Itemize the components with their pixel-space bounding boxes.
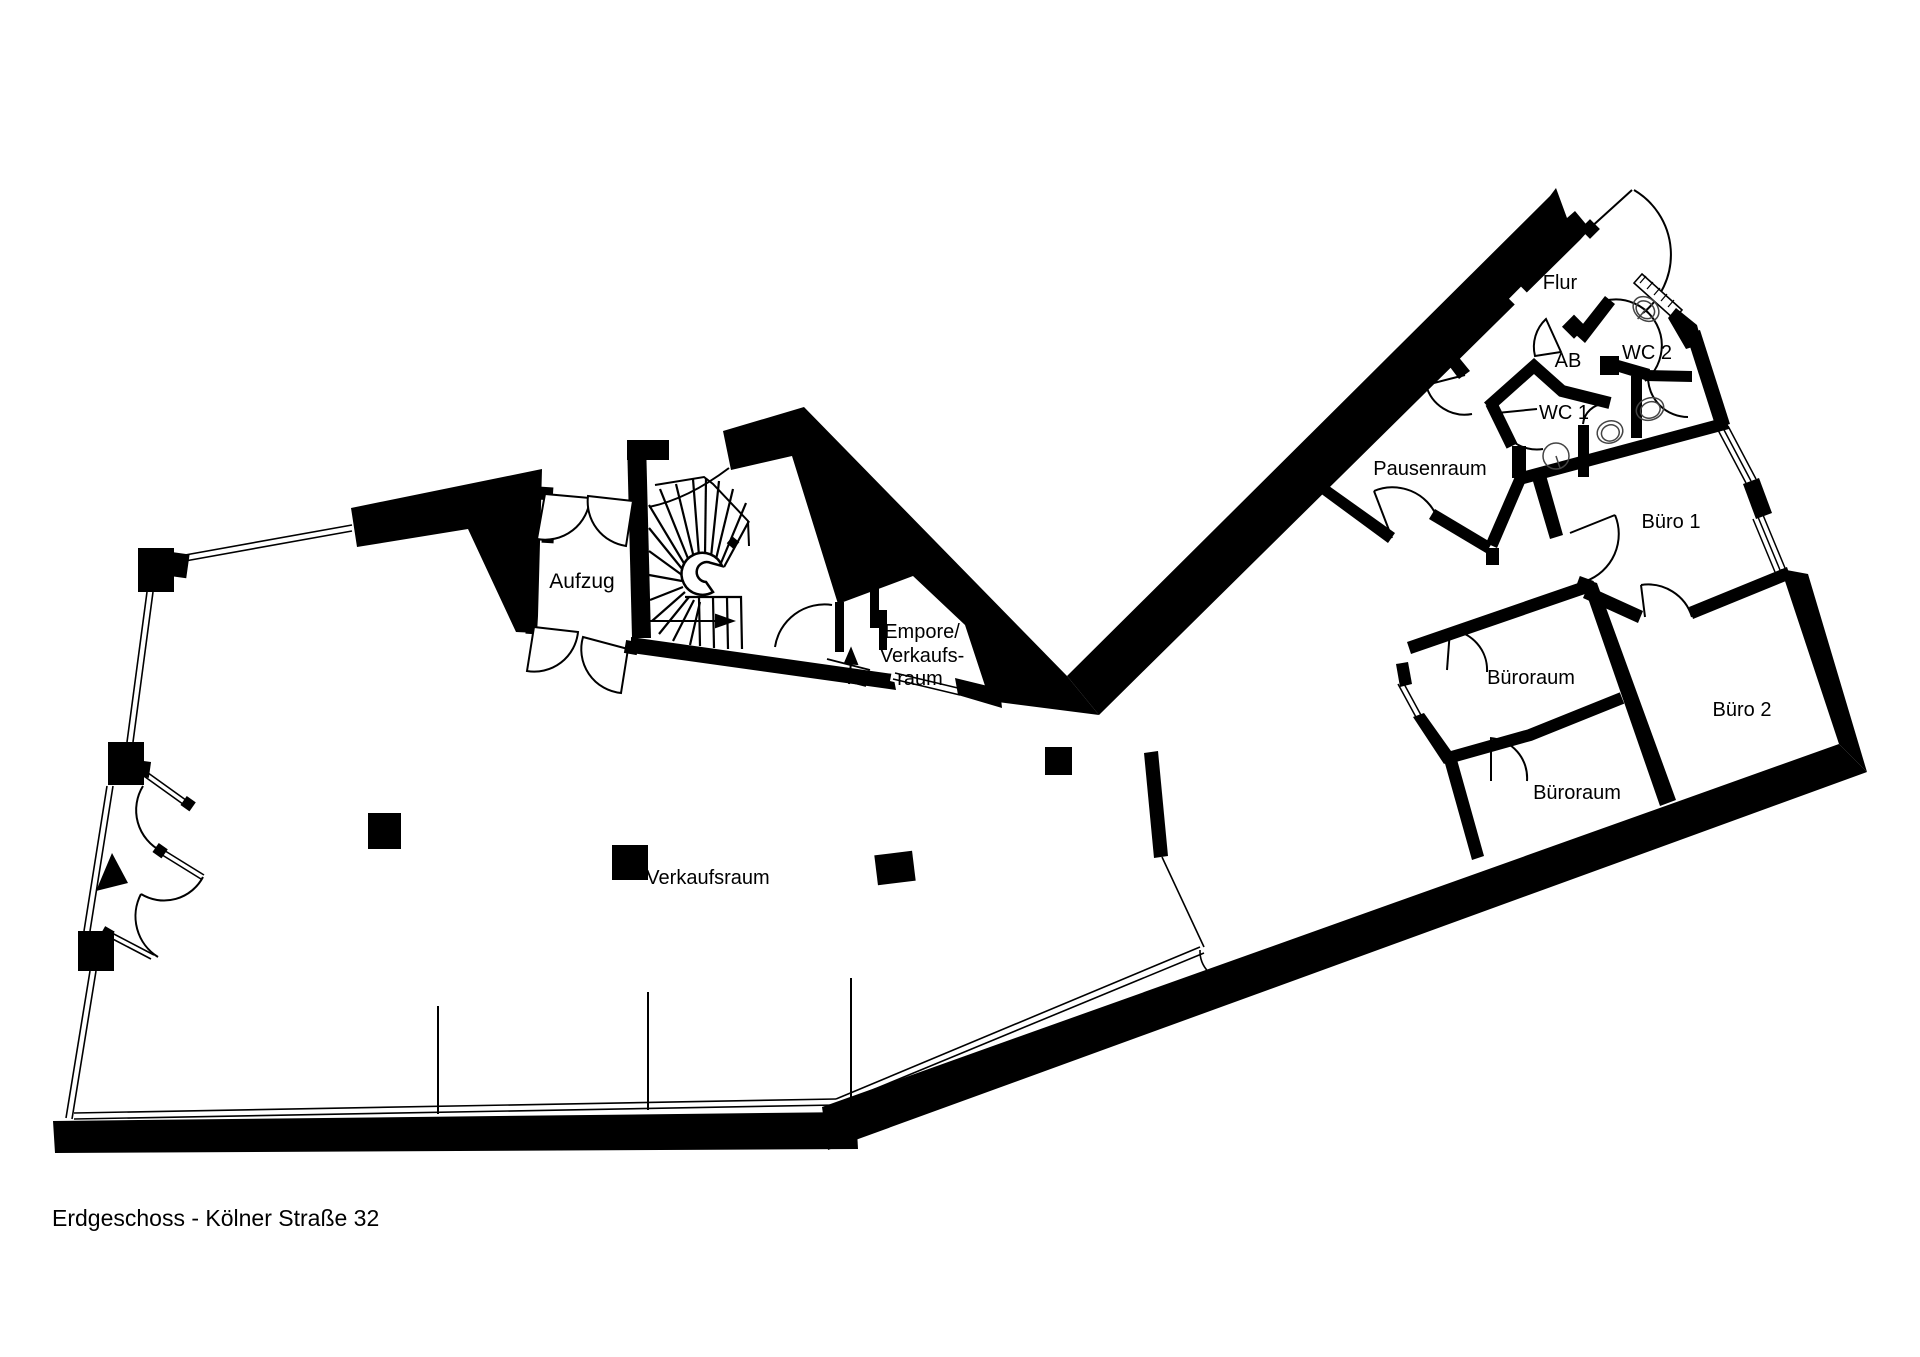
svg-text:Büroraum: Büroraum	[1533, 782, 1621, 804]
svg-text:Flur: Flur	[1543, 272, 1578, 294]
svg-text:Erdgeschoss - Kölner Straße 32: Erdgeschoss - Kölner Straße 32	[52, 1205, 379, 1231]
svg-text:Büro 1: Büro 1	[1642, 511, 1701, 533]
svg-text:Pausenraum: Pausenraum	[1373, 458, 1486, 480]
svg-text:AB: AB	[1555, 350, 1582, 372]
svg-text:WC 1: WC 1	[1539, 402, 1589, 424]
svg-text:raum: raum	[897, 668, 943, 690]
svg-text:Büroraum: Büroraum	[1487, 667, 1575, 689]
svg-text:WC 2: WC 2	[1622, 342, 1672, 364]
svg-text:Büro 2: Büro 2	[1713, 699, 1772, 721]
svg-text:Empore/: Empore/	[884, 621, 960, 643]
svg-text:Verkaufsraum: Verkaufsraum	[646, 867, 769, 889]
svg-text:Aufzug: Aufzug	[549, 570, 614, 593]
svg-text:Verkaufs-: Verkaufs-	[880, 645, 964, 667]
